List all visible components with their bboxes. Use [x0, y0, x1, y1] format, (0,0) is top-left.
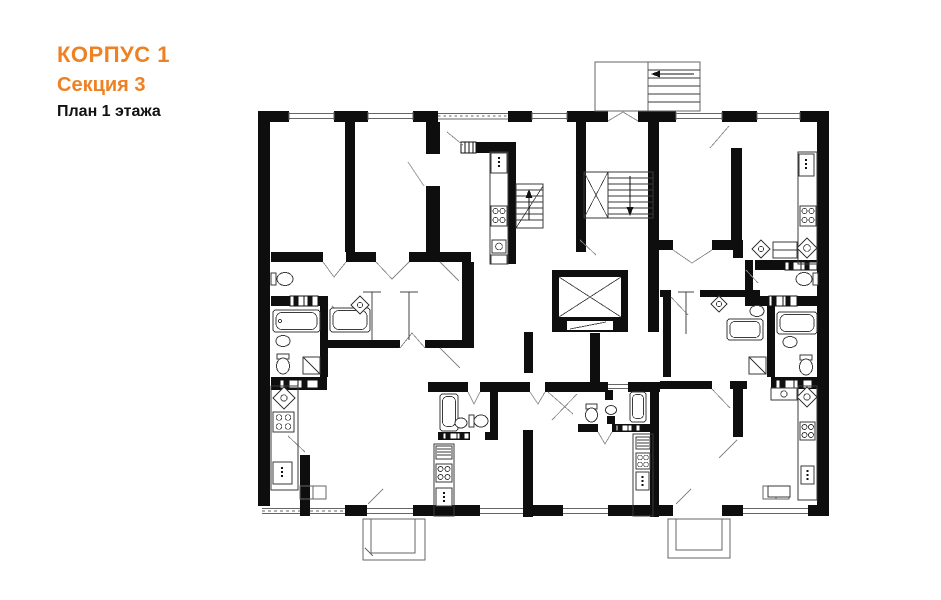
entry-staircase [516, 184, 543, 228]
washbasin-icon [606, 406, 617, 415]
kitchen-top-left [490, 152, 508, 264]
washbasin-icon [783, 337, 797, 348]
bathroom-center-left [440, 394, 488, 431]
toilet-icon [469, 415, 474, 427]
balcony-left [363, 519, 425, 560]
toilet-icon [271, 273, 276, 285]
kitchen-bottom-left [271, 386, 298, 490]
washbasin-icon [750, 306, 764, 317]
screenshot-root: КОРПУС 1 Секция 3 План 1 этажа [0, 0, 941, 600]
washbasin-icon [276, 336, 290, 347]
stove-icon [636, 453, 650, 469]
floor-plan [0, 0, 941, 600]
elevator-shaft [552, 270, 628, 332]
entrance-door-mark [608, 112, 638, 121]
corner-sink-icon [797, 238, 817, 258]
corner-sink-icon [273, 387, 295, 409]
shower-tray-icon [752, 240, 770, 258]
kitchen-bottom-right [768, 386, 817, 500]
stove-icon [273, 412, 294, 432]
toilet-icon [813, 273, 818, 285]
stair-down-arrow [627, 207, 634, 216]
kitchen-sink-icon [492, 240, 506, 253]
kitchen-top-right [773, 152, 817, 264]
bathroom-center-right [586, 392, 647, 422]
corner-sink-icon [797, 387, 817, 407]
bathtub-icon [273, 310, 320, 332]
balcony-right [668, 519, 730, 558]
wardrobes [300, 292, 789, 499]
porch-arrow [651, 71, 660, 78]
washbasin-icon [455, 418, 467, 428]
kitchen-center-left [434, 444, 454, 516]
corner-sink-icon [711, 296, 727, 312]
stove-icon [436, 464, 452, 482]
bathrooms-left [271, 273, 370, 375]
main-staircase [584, 172, 653, 218]
